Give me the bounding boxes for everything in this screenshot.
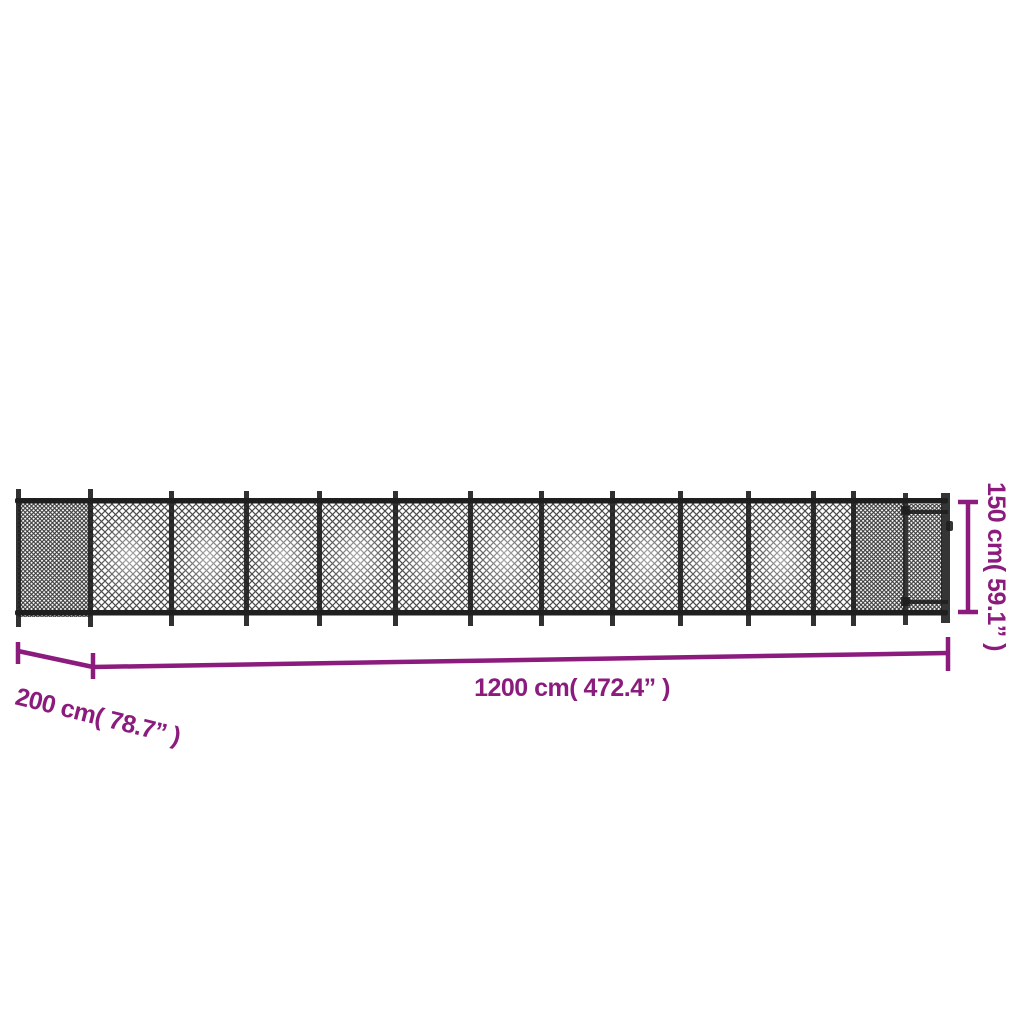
side-panel-mesh xyxy=(18,498,90,617)
gate-frame-bottom xyxy=(905,600,948,604)
height-dimension-label: 150 cm( 59.1” ) xyxy=(982,482,1010,651)
gate-mesh xyxy=(908,504,942,610)
gate-latch xyxy=(946,521,953,531)
fence-dimension-diagram: 200 cm( 78.7” ) 1200 cm( 472.4” ) 150 cm… xyxy=(0,0,1024,1024)
product-image: 200 cm( 78.7” ) 1200 cm( 472.4” ) 150 cm… xyxy=(0,0,1024,1024)
depth-dimension: 200 cm( 78.7” ) xyxy=(13,642,184,751)
mesh-highlights xyxy=(96,513,809,601)
fence-illustration xyxy=(15,489,953,627)
gate-hinge-top xyxy=(901,506,910,515)
height-dimension: 150 cm( 59.1” ) xyxy=(958,482,1010,651)
width-dimension-line xyxy=(93,653,948,667)
bottom-rail xyxy=(15,610,948,616)
depth-dimension-line xyxy=(18,651,93,667)
gate-frame-top xyxy=(905,510,948,514)
narrow-panel-mesh xyxy=(853,501,905,613)
width-dimension-label: 1200 cm( 472.4” ) xyxy=(474,674,670,702)
width-dimension: 1200 cm( 472.4” ) xyxy=(93,637,948,702)
gate-hinge-bottom xyxy=(901,597,910,606)
top-rail xyxy=(15,498,948,504)
depth-dimension-label: 200 cm( 78.7” ) xyxy=(13,683,184,751)
